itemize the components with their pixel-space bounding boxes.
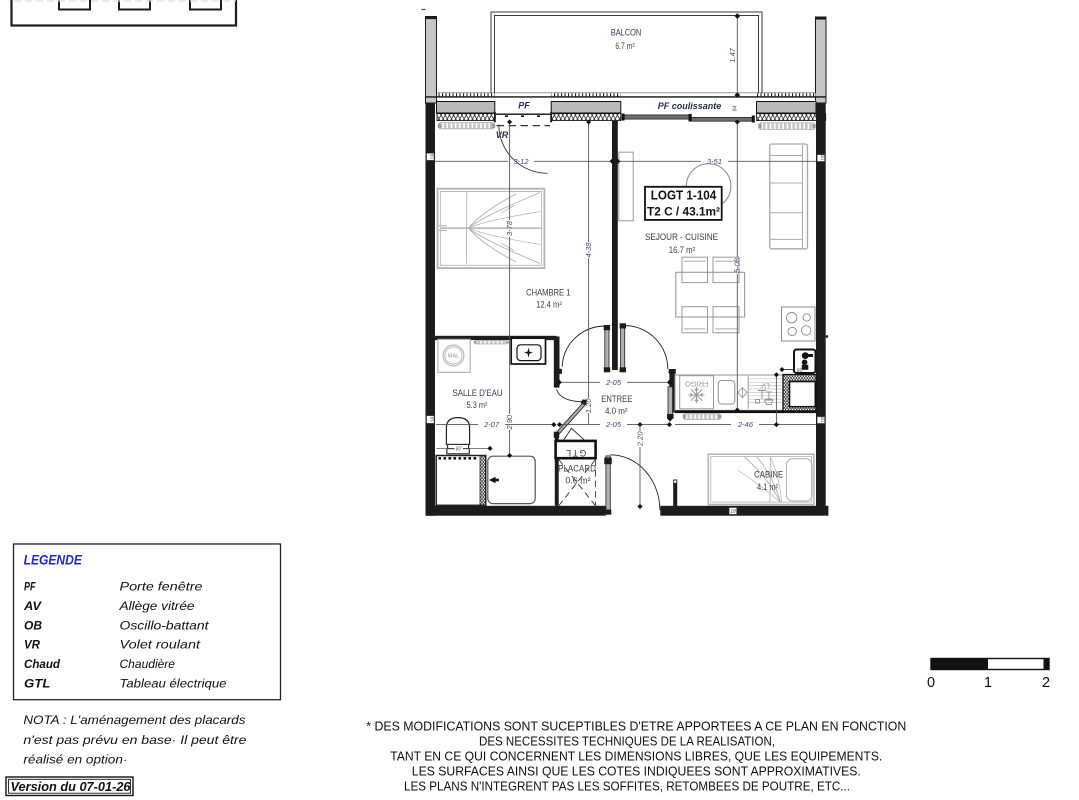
svg-text:Chaud: Chaud xyxy=(24,657,61,671)
svg-text:Chaudière: Chaudière xyxy=(120,657,176,671)
svg-text:2.20: 2.20 xyxy=(635,431,644,447)
svg-text:Tableau électrique: Tableau électrique xyxy=(120,677,227,691)
svg-text:2-05: 2-05 xyxy=(605,378,622,387)
svg-text:SALLE D'EAU: SALLE D'EAU xyxy=(453,388,503,398)
svg-text:3-51: 3-51 xyxy=(707,157,722,166)
svg-text:LOGT 1-104: LOGT 1-104 xyxy=(651,188,717,203)
svg-text:NOTA : L'aménagement des placa: NOTA : L'aménagement des placards xyxy=(23,713,245,727)
svg-text:CHAMBRE 1: CHAMBRE 1 xyxy=(526,288,570,298)
svg-text:4-38: 4-38 xyxy=(584,242,593,258)
svg-text:5-08: 5-08 xyxy=(733,257,742,273)
svg-text:16.7 m²: 16.7 m² xyxy=(669,245,695,255)
svg-text:LES SURFACES AINSI QUE LES COT: LES SURFACES AINSI QUE LES COTES INDIQUE… xyxy=(412,765,861,779)
svg-text:SEJOUR - CUISINE: SEJOUR - CUISINE xyxy=(645,232,718,242)
svg-text:4.0 m²: 4.0 m² xyxy=(605,406,628,416)
svg-text:18: 18 xyxy=(430,154,436,160)
svg-text:2-07: 2-07 xyxy=(483,420,500,429)
svg-text:n'est pas prévu en base· Il pe: n'est pas prévu en base· Il peut être xyxy=(23,733,246,747)
svg-text:VR: VR xyxy=(24,638,40,652)
svg-text:1.47: 1.47 xyxy=(728,47,737,62)
svg-text:réalisé en option·: réalisé en option· xyxy=(23,753,127,767)
svg-text:1.20: 1.20 xyxy=(584,398,593,413)
svg-text:2: 2 xyxy=(1042,675,1050,691)
svg-text:ENTREE: ENTREE xyxy=(601,394,632,404)
svg-text:OB: OB xyxy=(24,618,42,632)
svg-text:GTL: GTL xyxy=(565,448,587,458)
svg-text:DES NECESSITES TECHNIQUES DE L: DES NECESSITES TECHNIQUES DE LA REALISAT… xyxy=(479,735,775,749)
svg-text:4.1 m²: 4.1 m² xyxy=(757,482,778,492)
svg-text:VR: VR xyxy=(496,130,509,140)
svg-text:18: 18 xyxy=(430,417,436,423)
svg-text:Oscillo-battant: Oscillo-battant xyxy=(120,618,210,632)
svg-text:BALCON: BALCON xyxy=(611,28,642,38)
svg-text:1: 1 xyxy=(984,675,992,691)
svg-text:Porte fenêtre: Porte fenêtre xyxy=(120,580,203,594)
svg-text:12.4 m²: 12.4 m² xyxy=(536,300,562,310)
svg-text:Volet roulant: Volet roulant xyxy=(120,638,201,652)
svg-text:3-12: 3-12 xyxy=(513,157,529,166)
svg-text:6.7 m²: 6.7 m² xyxy=(615,41,634,51)
svg-text:60: 60 xyxy=(797,368,803,374)
svg-text:* DES MODIFICATIONS SONT SUCEP: * DES MODIFICATIONS SONT SUCEPTIBLES D'E… xyxy=(366,720,906,734)
svg-text:PF coulissante: PF coulissante xyxy=(658,101,722,111)
svg-text:3-78: 3-78 xyxy=(505,220,514,236)
svg-text:PLACARD: PLACARD xyxy=(558,464,596,474)
svg-text:T2 C / 43.1m²: T2 C / 43.1m² xyxy=(647,205,720,219)
svg-text:TANT EN CE QUI CONCERNENT LES: TANT EN CE QUI CONCERNENT LES DIMENSIONS… xyxy=(390,750,882,764)
svg-text:Allège vitrée: Allège vitrée xyxy=(118,599,194,613)
svg-text:84: 84 xyxy=(733,106,739,112)
svg-text:GTL: GTL xyxy=(24,677,50,691)
svg-text:AV: AV xyxy=(23,599,42,613)
svg-text:0.6 m²: 0.6 m² xyxy=(565,476,590,486)
svg-text:0: 0 xyxy=(927,675,935,691)
svg-text:LV: LV xyxy=(761,382,770,391)
svg-text:87: 87 xyxy=(456,447,462,453)
svg-text:PF: PF xyxy=(24,580,36,594)
svg-text:2-05: 2-05 xyxy=(605,420,622,429)
svg-text:LEGENDE: LEGENDE xyxy=(24,553,83,568)
svg-text:CABINE: CABINE xyxy=(754,470,783,480)
svg-text:5.3 m²: 5.3 m² xyxy=(467,400,488,410)
svg-text:18: 18 xyxy=(730,509,736,515)
svg-text:LES PLANS N'INTEGRENT PAS LES: LES PLANS N'INTEGRENT PAS LES SOFFITES, … xyxy=(404,780,850,794)
svg-text:18: 18 xyxy=(821,417,827,423)
svg-text:Version du 07-01-26: Version du 07-01-26 xyxy=(11,779,132,794)
svg-text:2-46: 2-46 xyxy=(737,420,754,429)
svg-text:18: 18 xyxy=(821,155,827,161)
svg-text:PF: PF xyxy=(518,101,530,111)
svg-text:MAL: MAL xyxy=(448,354,460,360)
svg-text:2.90: 2.90 xyxy=(505,414,514,430)
